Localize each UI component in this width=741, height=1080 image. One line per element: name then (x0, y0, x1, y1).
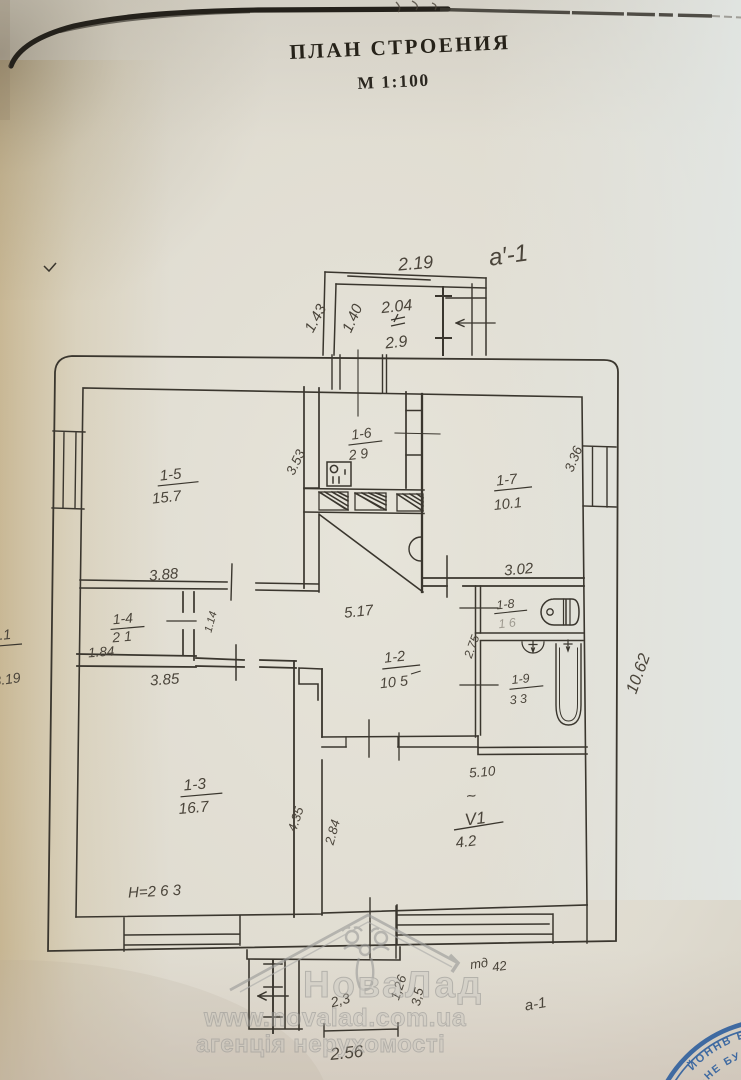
svg-text:Н=2 6 3: Н=2 6 3 (128, 882, 182, 902)
svg-text:15.7: 15.7 (151, 488, 182, 508)
svg-text:1-4: 1-4 (112, 609, 134, 627)
svg-text:2.9: 2.9 (383, 333, 408, 352)
svg-text:3 3: 3 3 (509, 692, 528, 708)
svg-text:www.novalad.com.ua: www.novalad.com.ua (203, 1004, 467, 1032)
svg-text:2.19: 2.19 (396, 252, 434, 275)
svg-text:2 9: 2 9 (347, 445, 369, 463)
svg-text:1-6: 1-6 (350, 424, 372, 442)
svg-text:2 1: 2 1 (111, 628, 133, 646)
svg-text:1-5: 1-5 (159, 465, 183, 484)
svg-text:16.7: 16.7 (178, 798, 211, 818)
svg-text:агенція нерухомості: агенція нерухомості (196, 1031, 445, 1058)
svg-text:10.1: 10.1 (493, 495, 523, 514)
svg-text:М 1:100: М 1:100 (357, 70, 430, 93)
svg-text:5.10: 5.10 (468, 763, 496, 780)
svg-text:1.84: 1.84 (88, 644, 115, 661)
svg-text:1-8: 1-8 (496, 597, 515, 613)
svg-text:1-2: 1-2 (383, 649, 406, 667)
svg-text:1-3: 1-3 (183, 776, 207, 795)
svg-text:1-7: 1-7 (495, 471, 518, 489)
svg-text:НоваЛад: НоваЛад (303, 964, 484, 1005)
svg-text:3.85: 3.85 (149, 670, 180, 689)
svg-text:2.04: 2.04 (379, 297, 413, 317)
svg-text:10 5: 10 5 (379, 673, 410, 692)
svg-text:2.1: 2.1 (0, 626, 12, 644)
svg-text:1 6: 1 6 (498, 616, 517, 632)
svg-text:1-9: 1-9 (511, 671, 530, 687)
svg-text:3.88: 3.88 (148, 565, 179, 585)
svg-text:3.02: 3.02 (503, 560, 534, 580)
svg-text:42: 42 (491, 958, 508, 975)
svg-text:4.2: 4.2 (455, 832, 478, 851)
svg-text:5.17: 5.17 (343, 602, 374, 622)
svg-text:а′-1: а′-1 (487, 240, 530, 272)
